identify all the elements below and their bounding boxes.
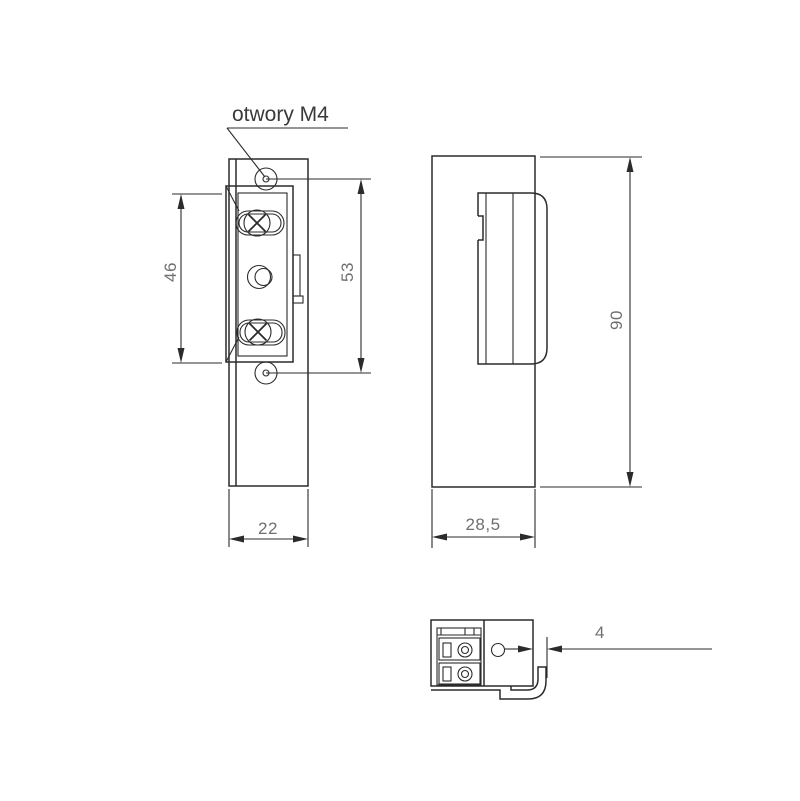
terminal-block: [437, 628, 481, 685]
arrow-4-outer: [547, 646, 562, 653]
arrow-53-up: [358, 179, 365, 194]
front-view: [172, 128, 371, 547]
keeper-side-tab: [293, 255, 303, 303]
dim-4-text: 4: [595, 623, 605, 642]
technical-drawing-page: otwory M4 46 53 22 90 28,5 4: [0, 0, 800, 801]
arrow-46-down: [178, 348, 185, 363]
dim-28-5-text: 28,5: [465, 515, 500, 534]
arrow-46-up: [178, 194, 185, 209]
electric-strike-drawing: otwory M4 46 53 22 90 28,5 4: [0, 0, 800, 801]
arrow-22-left: [229, 536, 244, 543]
arrow-4-inner: [518, 646, 533, 653]
top-view: [431, 620, 712, 699]
arrow-28-5-right: [520, 534, 535, 541]
top-body-outline: [431, 620, 533, 686]
dim-22-text: 22: [258, 519, 278, 538]
dim-4-lines: [505, 637, 712, 678]
label-otwory-m4: otwory M4: [232, 103, 329, 126]
dim-53-text: 53: [338, 262, 357, 282]
dim-90-text: 90: [607, 310, 626, 330]
cable-hole: [492, 644, 505, 657]
screw-top: [236, 210, 284, 236]
arrow-28-5-left: [432, 534, 447, 541]
strike-lip: [431, 667, 546, 699]
arrow-53-down: [358, 358, 365, 373]
latch-pin-hole: [248, 266, 273, 289]
linework: [172, 128, 712, 699]
arrow-90-up: [627, 157, 634, 172]
screw-bottom: [237, 319, 285, 345]
dim-90-lines: [540, 157, 642, 487]
leader-line-otwory: [227, 128, 348, 177]
dim-46-text: 46: [161, 262, 180, 282]
keeper-bevel-top: [226, 186, 239, 211]
side-body-outline: [432, 156, 535, 487]
keeper-bevel-bottom: [226, 337, 239, 362]
arrow-22-right: [293, 536, 308, 543]
side-view: [432, 156, 642, 548]
arrow-90-down: [627, 472, 634, 487]
